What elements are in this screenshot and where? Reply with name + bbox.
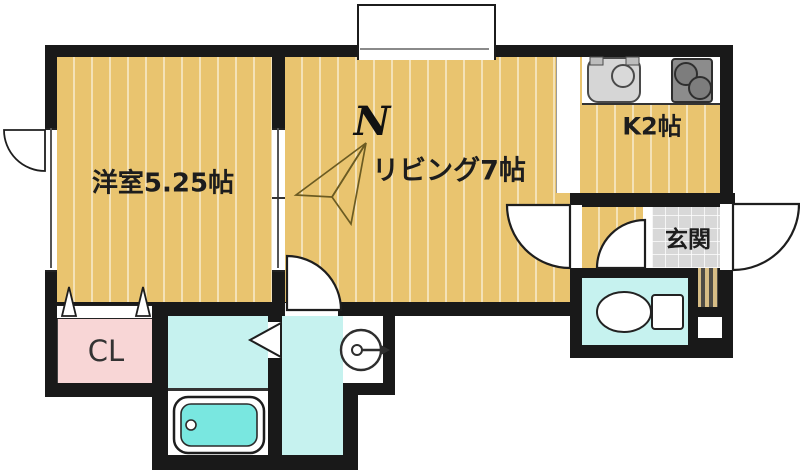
left-casement-window-swing [4, 130, 45, 171]
wall-partition-upper [272, 45, 285, 128]
wall-annex-left [152, 302, 168, 470]
wall-toilet-top [570, 268, 697, 278]
bay-window-glass-line [360, 48, 489, 50]
closet-label: CL [88, 334, 124, 368]
kitchen-label: K2帖 [622, 107, 681, 142]
wall-annex-right [343, 383, 358, 470]
hallway-floor [582, 207, 643, 268]
living-door-gap-bottom [285, 303, 338, 316]
bathroom-floor [168, 391, 268, 455]
entrance-step-stripes [697, 268, 720, 307]
front-door-gap [720, 204, 733, 270]
living-door-gap-right [570, 205, 582, 268]
washroom-bath-boundary [168, 388, 268, 391]
wall-annex-bottom [152, 455, 358, 470]
wall-closet-bottom [45, 383, 168, 397]
wall-toilet-bottom [570, 345, 733, 358]
left-window-glass-line [50, 128, 52, 268]
washroom-floor [168, 316, 268, 388]
floor-plan: N 洋室5.25帖 リビング7帖 K2帖 玄関 CL [0, 0, 800, 470]
entrance-label: 玄関 [665, 220, 711, 254]
kitchen-counter [582, 57, 720, 105]
wall-kitchen-bottom [570, 193, 735, 207]
toilet-room-floor [582, 278, 688, 345]
wall-partition-lower [272, 268, 285, 316]
sliding-door-tick [272, 197, 285, 199]
wall-laundry-right [383, 302, 395, 395]
closet-door-track [57, 305, 152, 319]
washroom-hall-floor [282, 316, 343, 455]
living-room-label: リビング7帖 [372, 149, 526, 188]
wall-bath-divider-b [268, 358, 282, 470]
pipe-space [698, 317, 722, 338]
front-entrance-door-swing [733, 204, 799, 270]
hall-door-jamb [643, 207, 652, 268]
wall-right-upper [720, 45, 733, 205]
kitchen-threshold [556, 57, 582, 193]
western-room-label: 洋室5.25帖 [92, 163, 234, 200]
laundry-space-floor [343, 316, 383, 383]
bath-door-gap [268, 322, 282, 358]
bay-window [357, 4, 496, 60]
